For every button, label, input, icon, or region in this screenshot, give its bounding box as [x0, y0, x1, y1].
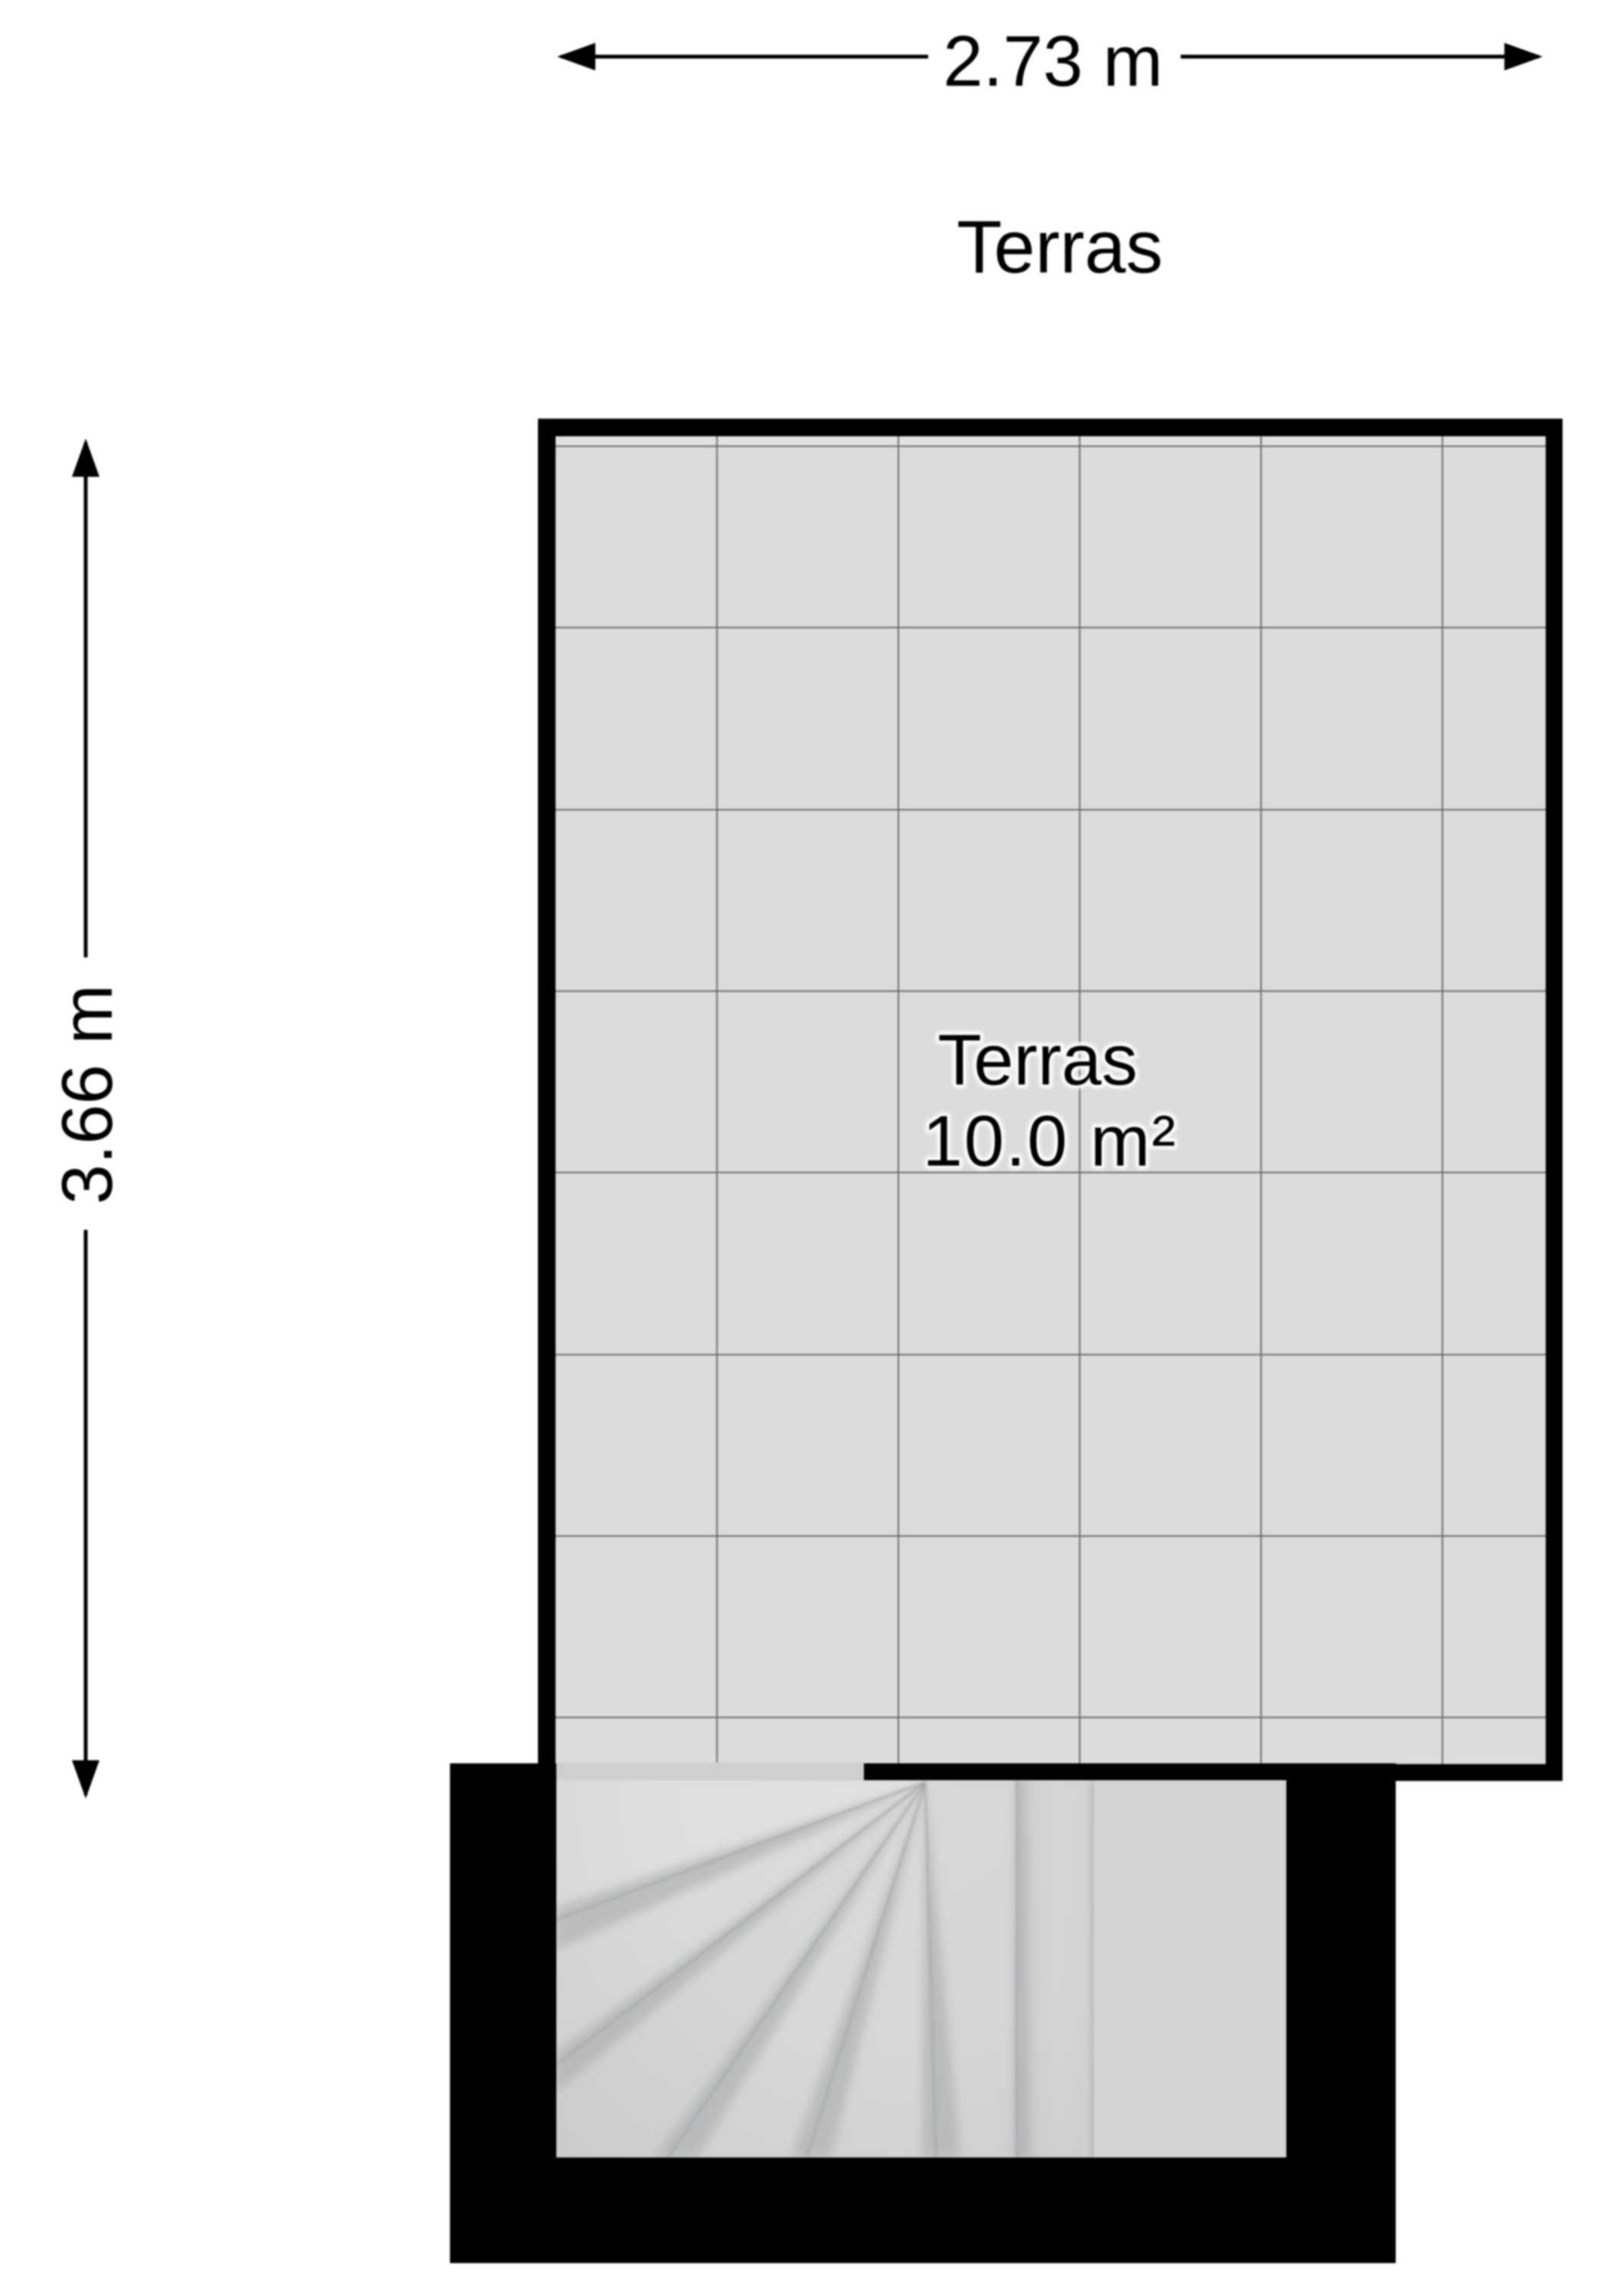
svg-text:2.73 m: 2.73 m — [943, 21, 1162, 101]
svg-text:10.0 m²: 10.0 m² — [923, 1101, 1178, 1181]
svg-text:Terras: Terras — [937, 1019, 1137, 1100]
svg-text:Terras: Terras — [957, 205, 1163, 289]
svg-text:3.66 m: 3.66 m — [47, 984, 127, 1204]
